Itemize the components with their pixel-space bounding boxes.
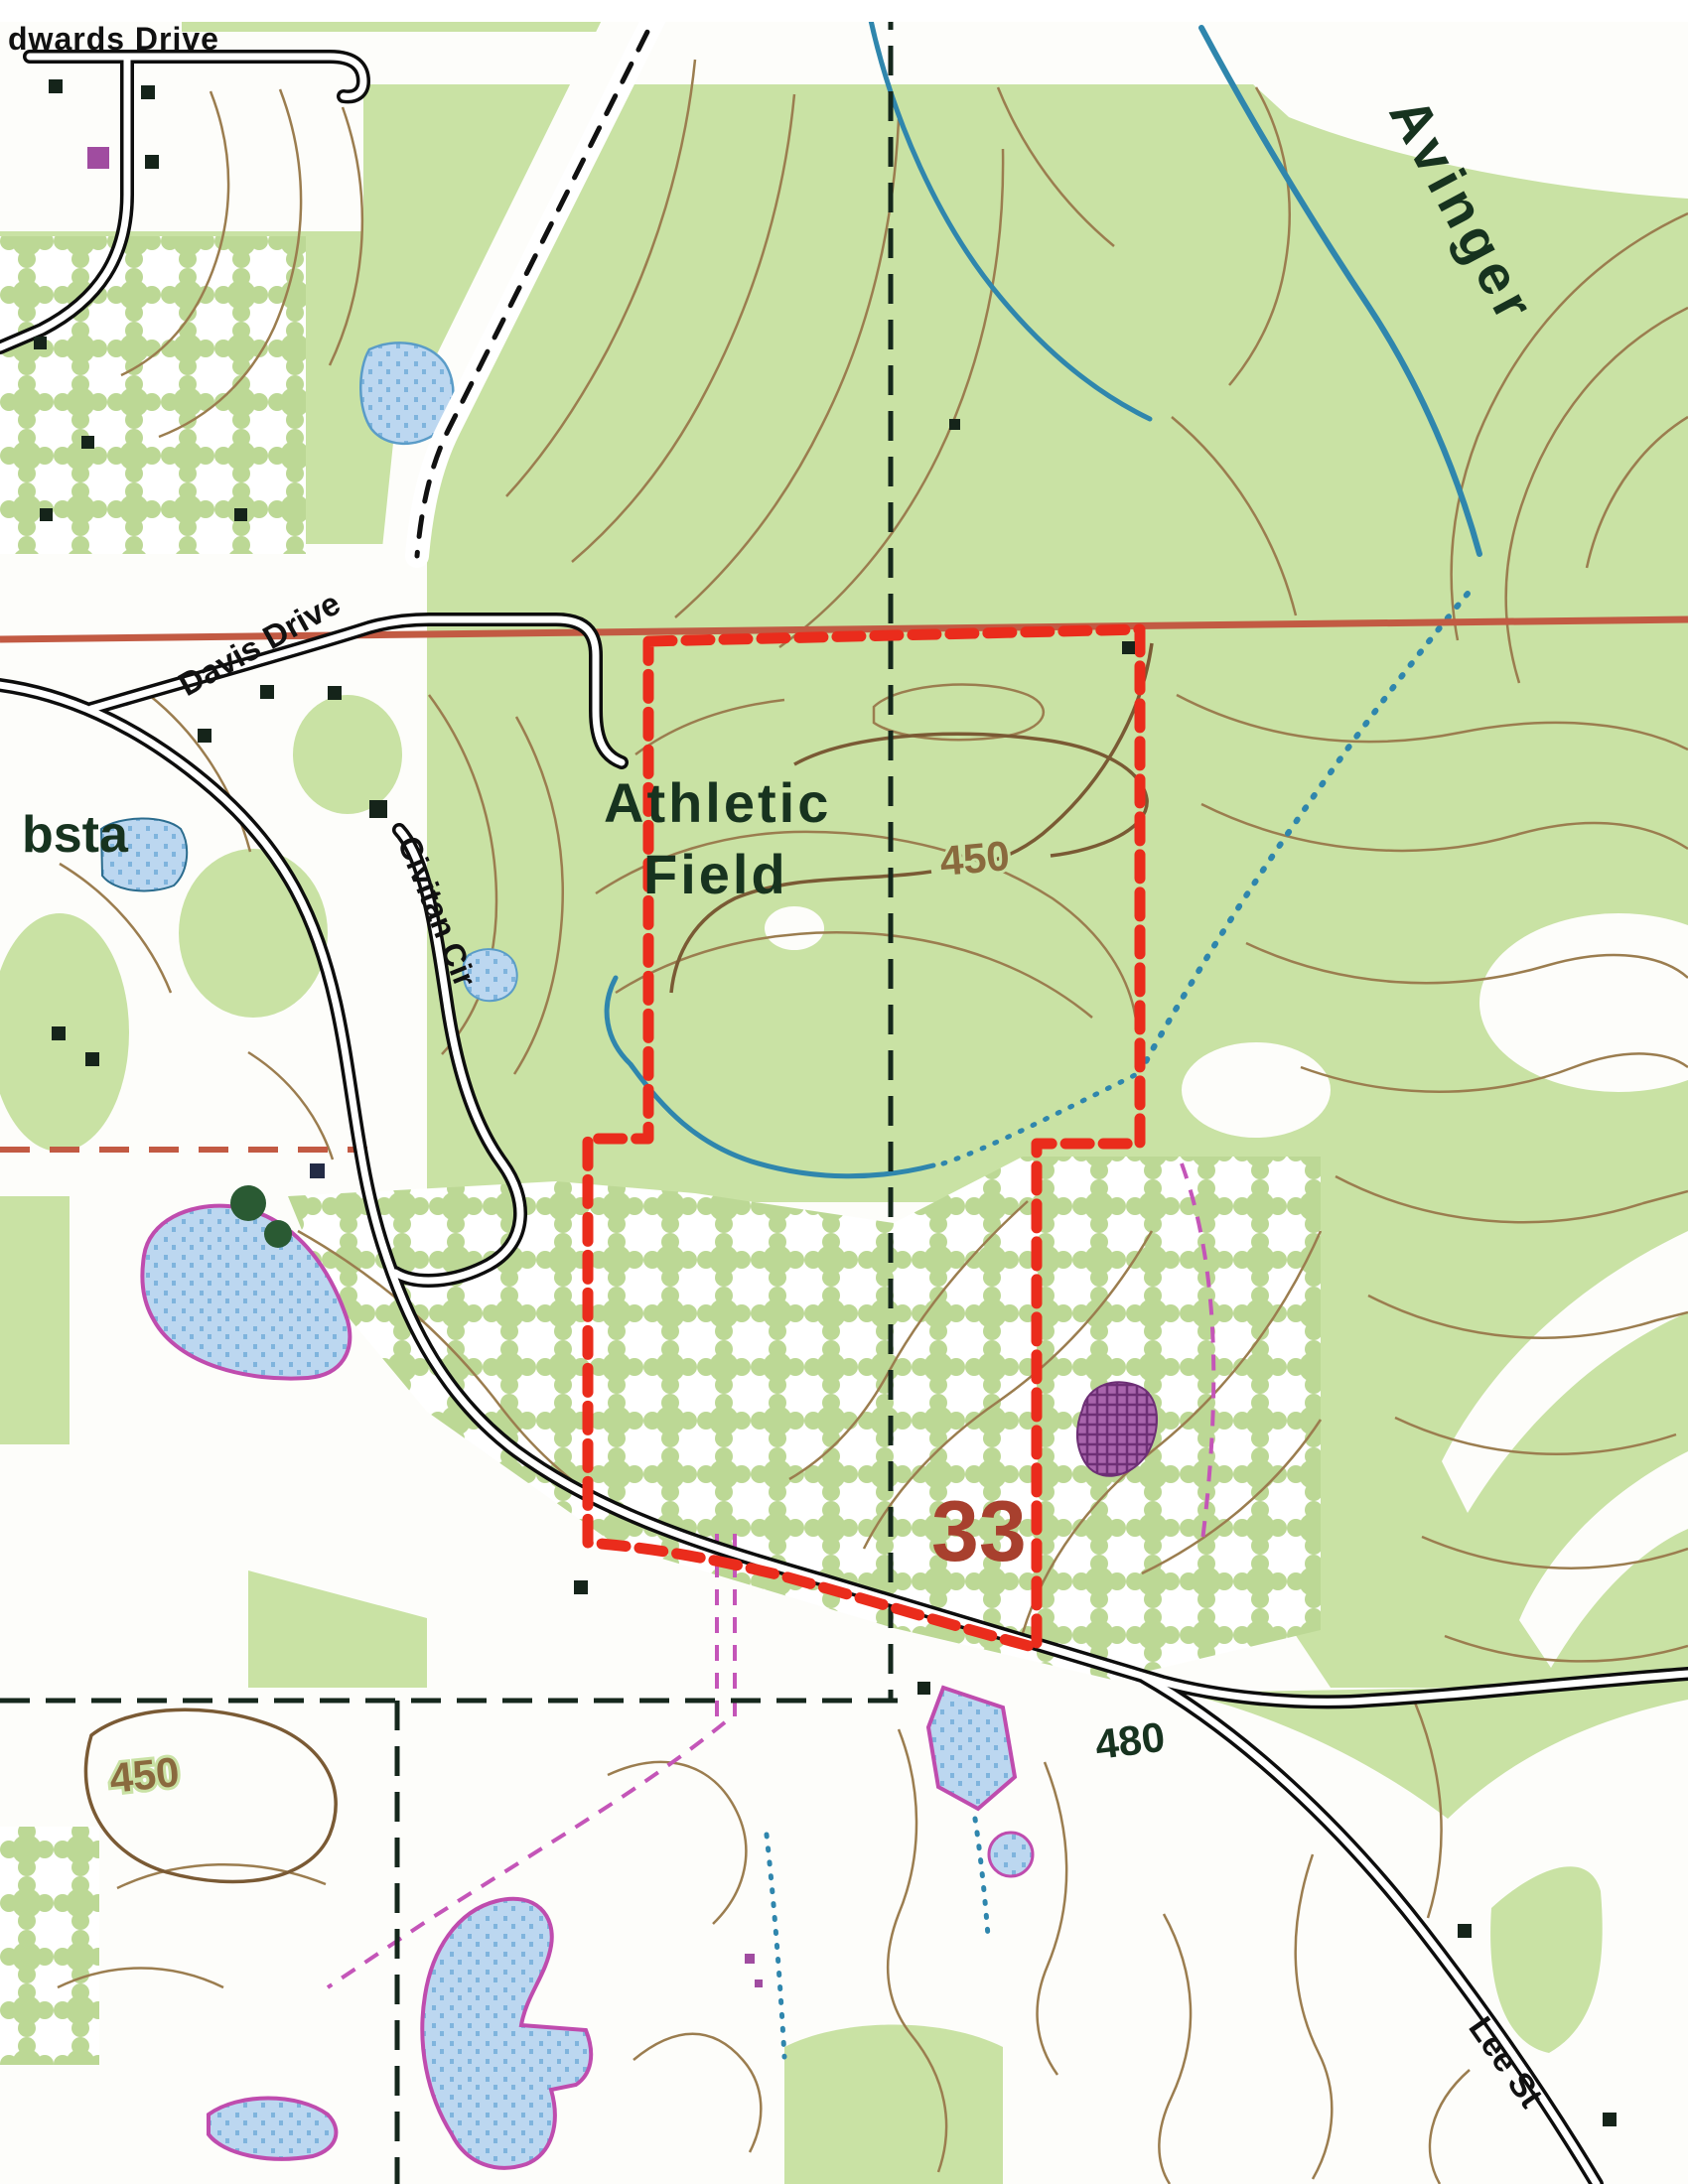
label-athletic: Athletic <box>604 771 831 834</box>
page-margin-top <box>0 0 1688 22</box>
topo-map-canvas: dwards Drive Davis Drive Civitan Cir Lee… <box>0 0 1688 2184</box>
label-contour-450-hill: 450 <box>938 832 1012 885</box>
label-field: Field <box>643 843 788 905</box>
label-substation: bsta <box>22 806 129 864</box>
label-edwards-drive: dwards Drive <box>8 21 219 57</box>
label-contour-450-sw: 450 <box>107 1748 182 1802</box>
label-spot-480: 480 <box>1092 1713 1167 1768</box>
pond-center-south <box>928 1688 1015 1809</box>
pond-small-south <box>989 1833 1033 1876</box>
pond-southwest-corner <box>209 2099 336 2159</box>
topo-map-viewport: dwards Drive Davis Drive Civitan Cir Lee… <box>0 0 1688 2184</box>
label-section-33: 33 <box>931 1484 1027 1579</box>
purple-building <box>87 147 109 169</box>
